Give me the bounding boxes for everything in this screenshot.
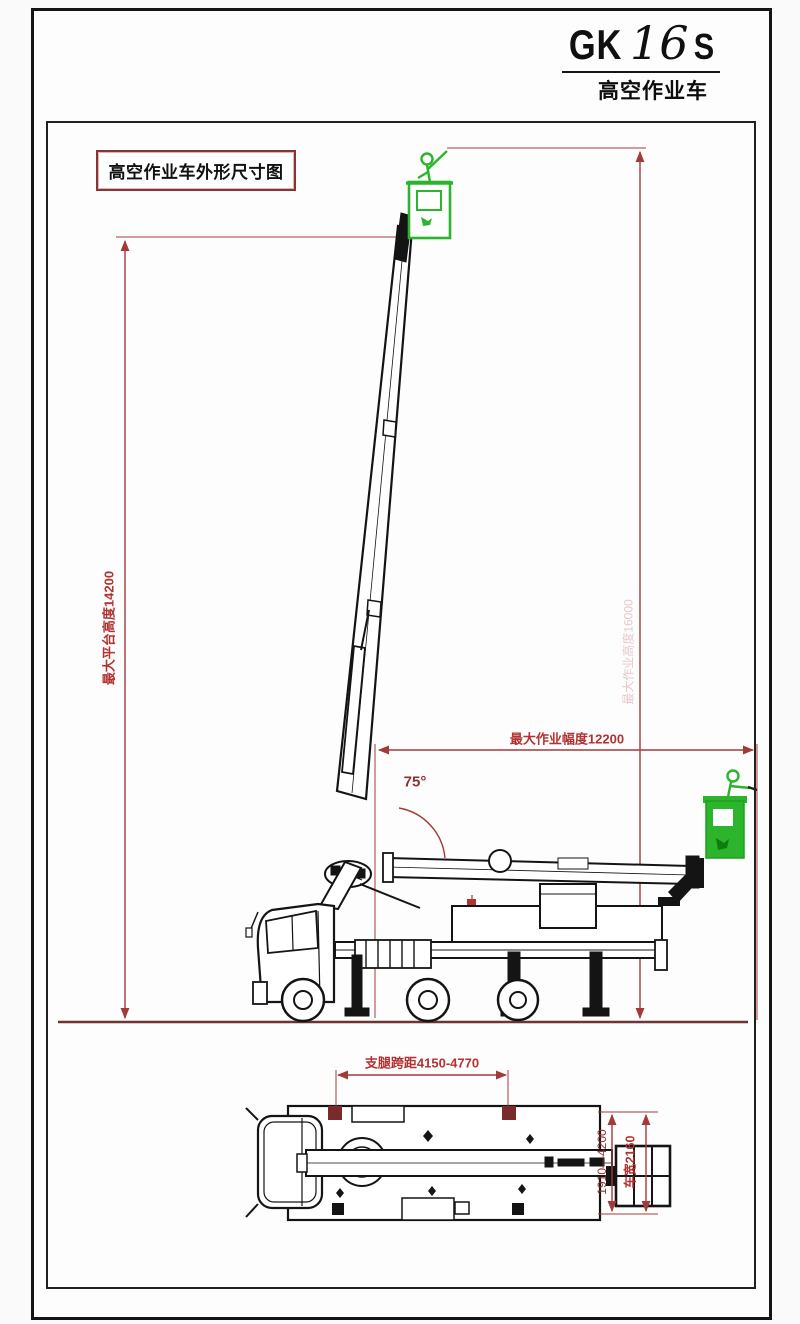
outrigger-pad-front [328,1106,342,1120]
worker-figure-top [418,151,447,182]
outrigger-pad-rear [502,1106,516,1120]
outrigger-extension-dimension-label: 1910—4200 [595,1129,609,1194]
raised-boom [337,213,412,799]
truck-side-view [246,884,667,1021]
drawing-sheet: GK16S 高空作业车 高空作业车外形尺寸图 [0,0,800,1324]
working-radius-dimension-label: 最大作业幅度12200 [510,729,624,748]
platform-height-dimension-label: 最大平台高度14200 [99,571,118,685]
outreach-basket-group [658,771,757,907]
side-view-dimension-lines [116,148,757,1020]
horizontal-boom [383,850,699,888]
dimension-drawing-canvas [0,0,800,1324]
outrigger-span-dimension-label: 支腿跨距4150-4770 [365,1053,479,1072]
top-basket-group [406,151,453,238]
worker-figure-right [728,771,751,798]
working-height-dimension-label: 最大作业高度16000 [620,599,637,704]
boom-angle-label: 75° [404,774,427,791]
vehicle-width-dimension-label: 车宽2160 [620,1136,639,1189]
